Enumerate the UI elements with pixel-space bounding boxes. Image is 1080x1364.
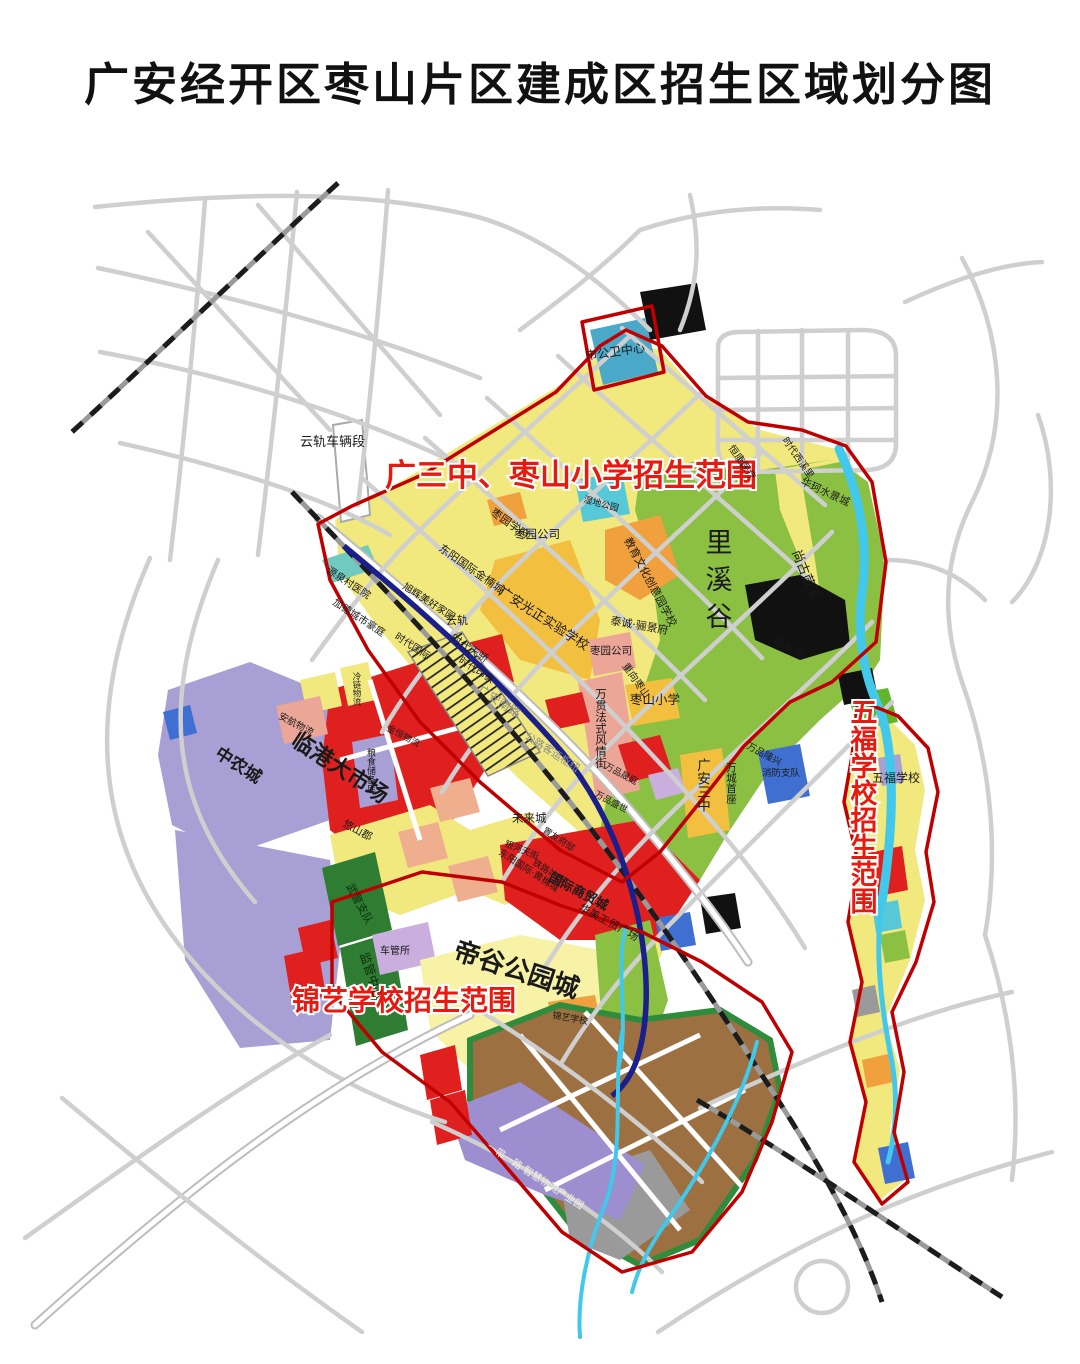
label-grain-reserve: 粮食储备库 [365,747,376,794]
page-title: 广安经开区枣山片区建成区招生区域划分图 [0,48,1080,113]
label-zaoyuan-1: 枣园公司 [514,527,560,541]
label-zaoshan-primary: 枣山小学 [630,692,680,707]
page: 广三中、枣山小学招生范围 五福学校招生范围 锦艺学校招生范围 帝谷公园城 里溪谷… [0,0,1080,1364]
label-cold-chain: 冷链物流 [351,671,361,707]
label-vehicle-admin: 车管所 [380,944,410,957]
map-canvas: 广三中、枣山小学招生范围 五福学校招生范围 锦艺学校招生范围 帝谷公园城 里溪谷… [0,0,1080,1364]
label-zone3: 锦艺学校招生范围 [292,984,516,1017]
label-wufu-school: 五福学校 [872,770,920,785]
label-zone1: 广三中、枣山小学招生范围 [385,458,757,494]
label-weilai-city: 未来城 [512,811,547,825]
label-guangan-no3-middle: 广安三中 [694,758,711,813]
label-lixigu: 里溪谷 [701,528,733,639]
label-yungui-line: 云轨 [446,613,468,627]
label-zaoyuan-2: 枣园公司 [590,645,632,657]
label-fire-brigade: 消防支队 [762,767,801,779]
label-wanguan-street: 万贯法式风情街 [594,688,608,769]
label-wancheng-shouzuo: 万城首座 [725,762,737,804]
label-yungui-depot: 云轨车辆段 [300,434,365,450]
label-zone2: 五福学校招生范围 [846,698,879,914]
